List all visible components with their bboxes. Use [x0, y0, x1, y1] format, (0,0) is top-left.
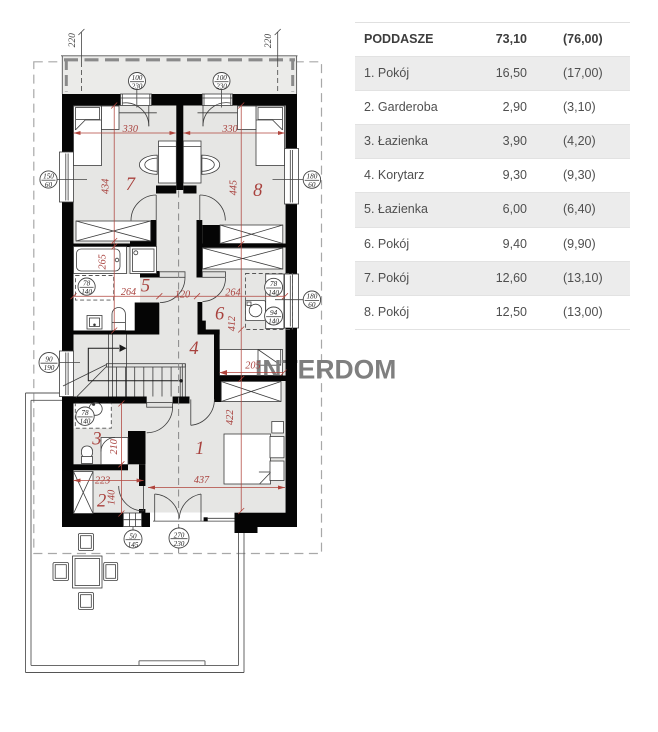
svg-text:100: 100	[132, 74, 143, 82]
svg-text:190: 190	[44, 364, 55, 372]
svg-text:78: 78	[83, 279, 91, 287]
svg-text:230: 230	[174, 540, 185, 548]
svg-text:60: 60	[45, 181, 53, 189]
svg-text:60: 60	[308, 301, 316, 309]
svg-text:60: 60	[308, 181, 316, 189]
svg-text:445: 445	[229, 180, 240, 195]
svg-text:50: 50	[129, 533, 137, 541]
svg-text:78: 78	[270, 280, 278, 288]
svg-text:140: 140	[81, 288, 92, 296]
svg-text:412: 412	[227, 316, 238, 331]
svg-text:6: 6	[215, 305, 225, 325]
svg-text:150: 150	[43, 172, 54, 180]
svg-text:180: 180	[307, 172, 318, 180]
svg-text:8: 8	[253, 181, 263, 201]
svg-text:434: 434	[101, 179, 112, 194]
svg-text:140: 140	[107, 490, 118, 505]
svg-text:422: 422	[225, 410, 236, 425]
svg-text:100: 100	[216, 74, 227, 82]
svg-text:94: 94	[270, 309, 278, 317]
svg-text:2: 2	[97, 491, 106, 511]
svg-text:230: 230	[132, 83, 143, 91]
svg-text:210: 210	[109, 439, 120, 454]
svg-text:90: 90	[45, 355, 53, 363]
svg-text:220: 220	[68, 33, 78, 48]
svg-text:437: 437	[194, 475, 210, 486]
svg-text:270: 270	[174, 532, 185, 540]
svg-text:264: 264	[121, 287, 136, 298]
svg-text:205: 205	[245, 361, 260, 372]
svg-text:140: 140	[268, 289, 279, 297]
svg-text:7: 7	[126, 175, 136, 195]
svg-text:140: 140	[80, 418, 91, 426]
svg-text:78: 78	[81, 409, 89, 417]
svg-text:3: 3	[91, 430, 101, 450]
svg-text:220: 220	[264, 34, 274, 49]
svg-text:4: 4	[189, 339, 198, 359]
svg-text:265: 265	[98, 254, 109, 269]
svg-text:330: 330	[221, 124, 237, 135]
svg-text:264: 264	[225, 287, 240, 298]
svg-text:223: 223	[95, 475, 110, 486]
svg-text:230: 230	[216, 83, 227, 91]
svg-text:1: 1	[195, 439, 204, 459]
svg-text:120: 120	[175, 289, 190, 300]
svg-text:140: 140	[268, 318, 279, 326]
svg-text:180: 180	[307, 293, 318, 301]
svg-text:145: 145	[128, 541, 139, 549]
svg-text:330: 330	[122, 124, 138, 135]
svg-text:5: 5	[141, 277, 150, 297]
